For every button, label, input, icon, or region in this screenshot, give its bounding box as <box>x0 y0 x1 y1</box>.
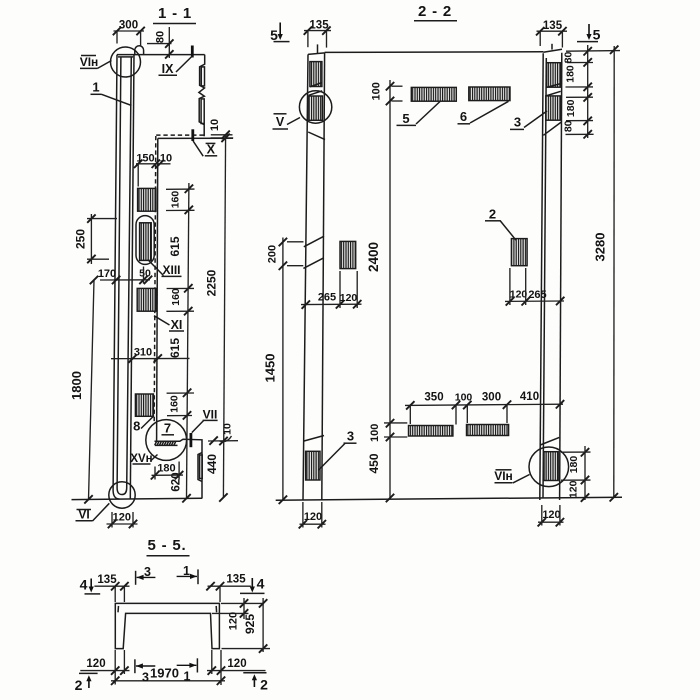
svg-text:180: 180 <box>565 99 577 117</box>
svg-text:1: 1 <box>92 80 99 95</box>
svg-text:XI: XI <box>171 318 183 332</box>
svg-text:310: 310 <box>134 347 152 359</box>
svg-text:3: 3 <box>144 565 151 579</box>
svg-text:450: 450 <box>367 453 381 473</box>
svg-text:120: 120 <box>86 658 105 670</box>
svg-text:200: 200 <box>267 245 279 263</box>
svg-text:160: 160 <box>170 191 182 209</box>
svg-text:IX: IX <box>162 62 174 76</box>
svg-text:100: 100 <box>371 82 383 100</box>
svg-text:X: X <box>207 143 216 157</box>
svg-text:135: 135 <box>226 574 246 586</box>
svg-text:300: 300 <box>119 20 138 32</box>
svg-text:6: 6 <box>460 109 467 124</box>
svg-text:440: 440 <box>205 454 219 474</box>
svg-text:VIн: VIн <box>80 55 99 69</box>
svg-text:160: 160 <box>169 395 181 413</box>
svg-text:3280: 3280 <box>592 233 607 262</box>
svg-text:10: 10 <box>222 423 234 435</box>
svg-text:XVн: XVн <box>130 453 152 465</box>
svg-text:250: 250 <box>74 229 88 249</box>
svg-text:925: 925 <box>243 614 257 634</box>
svg-text:100: 100 <box>369 424 381 442</box>
svg-text:2250: 2250 <box>204 269 218 296</box>
svg-text:180: 180 <box>565 65 577 83</box>
svg-text:150: 150 <box>136 153 154 165</box>
svg-text:265: 265 <box>318 292 336 304</box>
svg-text:5: 5 <box>270 27 278 43</box>
svg-text:XIII: XIII <box>162 263 180 277</box>
svg-text:1 - 1: 1 - 1 <box>158 5 192 22</box>
svg-text:2: 2 <box>260 677 268 693</box>
svg-text:180: 180 <box>568 456 580 474</box>
svg-text:4: 4 <box>257 576 265 592</box>
svg-text:80: 80 <box>563 120 575 132</box>
svg-text:80: 80 <box>563 52 575 64</box>
svg-text:300: 300 <box>482 392 501 404</box>
svg-text:180: 180 <box>157 463 175 475</box>
svg-text:1: 1 <box>183 564 190 578</box>
svg-text:V: V <box>276 115 285 129</box>
svg-text:135: 135 <box>97 574 117 586</box>
svg-text:1: 1 <box>184 670 191 684</box>
svg-text:120: 120 <box>113 512 131 524</box>
svg-text:120: 120 <box>510 289 528 301</box>
svg-text:50: 50 <box>139 268 151 280</box>
svg-text:7: 7 <box>164 421 171 436</box>
svg-text:5: 5 <box>593 27 601 43</box>
svg-text:4: 4 <box>80 577 88 593</box>
svg-text:VIн: VIн <box>494 469 513 483</box>
svg-text:170: 170 <box>98 268 116 280</box>
svg-text:3: 3 <box>142 671 149 685</box>
svg-text:120: 120 <box>228 612 240 630</box>
svg-text:120: 120 <box>340 292 358 304</box>
svg-text:135: 135 <box>309 19 329 31</box>
svg-text:1970: 1970 <box>150 666 179 681</box>
svg-text:10: 10 <box>209 119 221 131</box>
svg-text:1800: 1800 <box>69 371 84 400</box>
svg-text:135: 135 <box>543 20 563 32</box>
svg-text:120: 120 <box>227 658 246 670</box>
svg-text:2: 2 <box>75 677 83 693</box>
svg-text:VI: VI <box>78 508 89 522</box>
svg-text:410: 410 <box>520 391 539 403</box>
svg-text:3: 3 <box>347 429 354 444</box>
svg-text:120: 120 <box>542 509 560 521</box>
svg-text:VII: VII <box>203 408 218 422</box>
svg-text:5: 5 <box>402 111 409 126</box>
svg-text:2 - 2: 2 - 2 <box>418 3 452 20</box>
svg-text:10: 10 <box>160 153 172 165</box>
svg-text:3: 3 <box>514 115 521 130</box>
svg-text:120: 120 <box>568 480 580 498</box>
svg-text:2: 2 <box>489 207 496 222</box>
svg-text:350: 350 <box>424 392 443 404</box>
svg-text:80: 80 <box>155 31 167 43</box>
svg-text:160: 160 <box>170 288 182 306</box>
svg-text:100: 100 <box>455 392 473 404</box>
svg-text:120: 120 <box>304 511 322 523</box>
svg-text:265: 265 <box>528 289 546 301</box>
svg-text:8: 8 <box>133 419 140 434</box>
svg-text:615: 615 <box>168 338 182 358</box>
svg-text:5 - 5.: 5 - 5. <box>148 537 187 554</box>
svg-text:2400: 2400 <box>366 242 381 272</box>
svg-text:615: 615 <box>168 236 182 256</box>
svg-text:1450: 1450 <box>263 354 278 383</box>
